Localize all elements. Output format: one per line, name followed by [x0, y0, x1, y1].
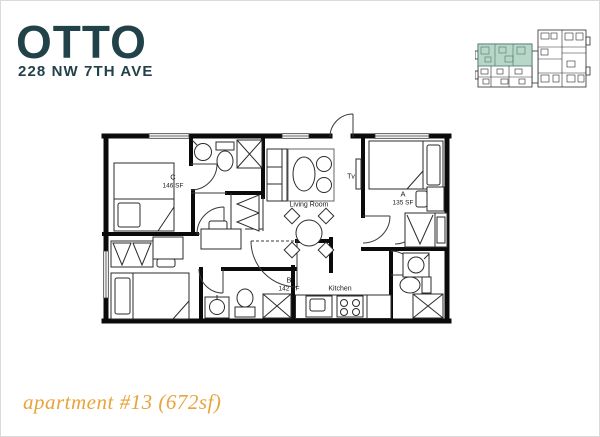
- bedroom-b-furniture: [111, 237, 189, 319]
- bedroom-a-furniture: [369, 141, 447, 247]
- tv-unit: [356, 159, 361, 189]
- bedroom-a-label: A: [400, 190, 405, 199]
- floor-plan-sheet: OTTO 228 NW 7TH AVE: [0, 0, 600, 437]
- living-room-label: Living Room: [290, 202, 329, 209]
- bedroom-a-area: 135 SF: [393, 200, 414, 207]
- bedroom-b-area: 142 SF: [279, 286, 300, 293]
- kitchen-label: Kitchen: [328, 286, 351, 293]
- bedroom-b-label: B: [286, 276, 291, 285]
- bedroom-c-label: C: [170, 173, 175, 182]
- kitchen-fixtures: [296, 295, 392, 319]
- tv-label: Tv: [347, 174, 355, 181]
- bath-2-fixtures: [400, 253, 443, 318]
- dining-table: [296, 220, 322, 246]
- apartment-caption: apartment #13 (672sf): [23, 390, 221, 415]
- floor-plan-drawing: [1, 1, 600, 437]
- bath-3-fixtures: [205, 289, 291, 318]
- bedroom-c-furniture: [114, 163, 241, 249]
- bedroom-c-area: 146 SF: [163, 183, 184, 190]
